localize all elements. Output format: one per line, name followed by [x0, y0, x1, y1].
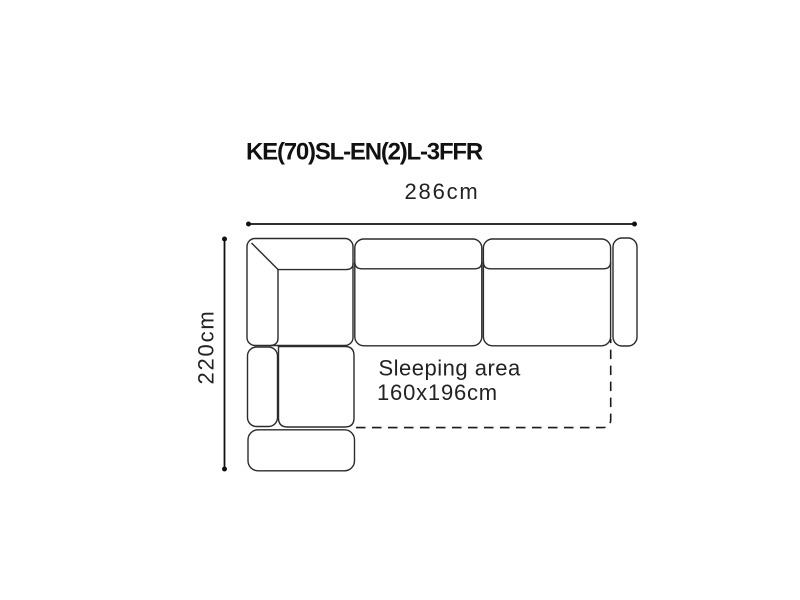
svg-text:286cm: 286cm [405, 179, 480, 204]
svg-text:KE(70)SL-EN(2)L-3FFR: KE(70)SL-EN(2)L-3FFR [246, 139, 483, 166]
svg-text:220cm: 220cm [194, 309, 219, 384]
svg-text:Sleeping area: Sleeping area [379, 356, 522, 381]
svg-text:160x196cm: 160x196cm [377, 380, 498, 405]
